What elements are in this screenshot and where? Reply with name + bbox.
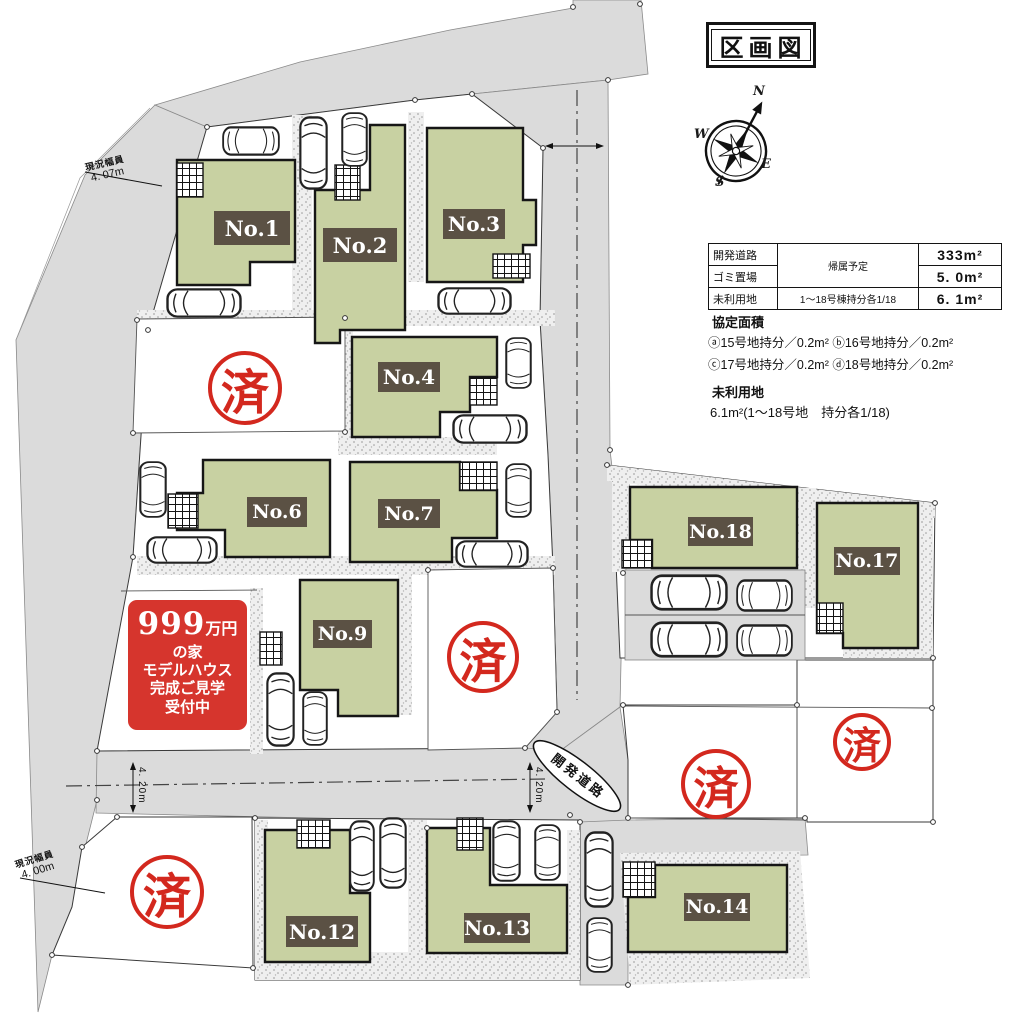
table-cell-value: 333m²: [919, 244, 1002, 266]
lot-label-no2: No.2: [323, 228, 397, 262]
lot-label-no18: No.18: [688, 517, 753, 546]
unused-land-detail: 6.1m²(1〜18号地 持分各1/18): [710, 406, 890, 421]
lot-label-no3: No.3: [443, 209, 505, 239]
promo-price-unit: 万円: [205, 621, 237, 638]
agreement-line-2: ⓒ17号地持分／0.2m² ⓓ18号地持分／0.2m²: [708, 358, 953, 372]
promo-line: モデルハウス: [128, 662, 247, 680]
sold-stamp: 済: [208, 351, 282, 425]
promo-price: 999: [138, 606, 206, 642]
table-cell-item: 未利用地: [709, 288, 778, 310]
lot-label-no1: No.1: [214, 211, 290, 245]
table-cell-item: 開発道路: [709, 244, 778, 266]
compass-east-label: E: [761, 157, 771, 172]
road-width-dimension: 4. 20m: [136, 767, 147, 804]
lot-label-no17: No.17: [834, 547, 900, 575]
table-row: 開発道路 帰属予定 333m²: [709, 244, 1002, 266]
model-house-promo: 999万円 の家 モデルハウス 完成ご見学 受付中: [128, 600, 247, 730]
sold-stamp: 済: [447, 621, 519, 693]
land-info-table: 開発道路 帰属予定 333m² ゴミ置場 5. 0m² 未利用地 1〜18号棟持…: [708, 243, 1002, 310]
plan-title-box: 区画図: [706, 22, 816, 68]
sold-stamp: 済: [130, 855, 204, 929]
road-width-dimension: 4. 20m: [533, 767, 544, 804]
table-cell-value: 6. 1m²: [919, 288, 1002, 310]
lot-label-no12: No.12: [286, 916, 358, 947]
plan-title: 区画図: [711, 29, 811, 61]
promo-line: の家: [128, 644, 247, 662]
table-row: 未利用地 1〜18号棟持分各1/18 6. 1m²: [709, 288, 1002, 310]
lot-label-no9: No.9: [313, 620, 372, 648]
compass-north-label: N: [753, 84, 765, 99]
compass-icon: [692, 87, 789, 198]
agreement-heading: 協定面積: [712, 316, 764, 331]
unused-land-heading: 未利用地: [712, 386, 764, 401]
compass-south-label: S: [715, 175, 724, 190]
lot-label-no14: No.14: [684, 893, 750, 921]
table-cell-item: ゴミ置場: [709, 266, 778, 288]
promo-line: 受付中: [128, 699, 247, 717]
table-cell-note: 1〜18号棟持分各1/18: [778, 288, 919, 310]
sold-stamp: 済: [681, 749, 751, 819]
lot-label-no4: No.4: [378, 362, 440, 392]
agreement-line-1: ⓐ15号地持分／0.2m² ⓑ16号地持分／0.2m²: [708, 336, 953, 350]
promo-price-line: 999万円: [128, 606, 247, 644]
lot-label-no6: No.6: [247, 497, 307, 527]
table-cell-note: 帰属予定: [778, 244, 919, 288]
table-cell-value: 5. 0m²: [919, 266, 1002, 288]
compass-west-label: W: [694, 127, 709, 142]
lot-label-no13: No.13: [464, 913, 530, 943]
lot-plan-page: 区画図 N W S E 開発道路 帰属予定 333m² ゴミ置場 5. 0m² …: [0, 0, 1022, 1024]
lot-label-no7: No.7: [378, 499, 440, 528]
sold-stamp: 済: [833, 713, 891, 771]
promo-line: 完成ご見学: [128, 680, 247, 698]
